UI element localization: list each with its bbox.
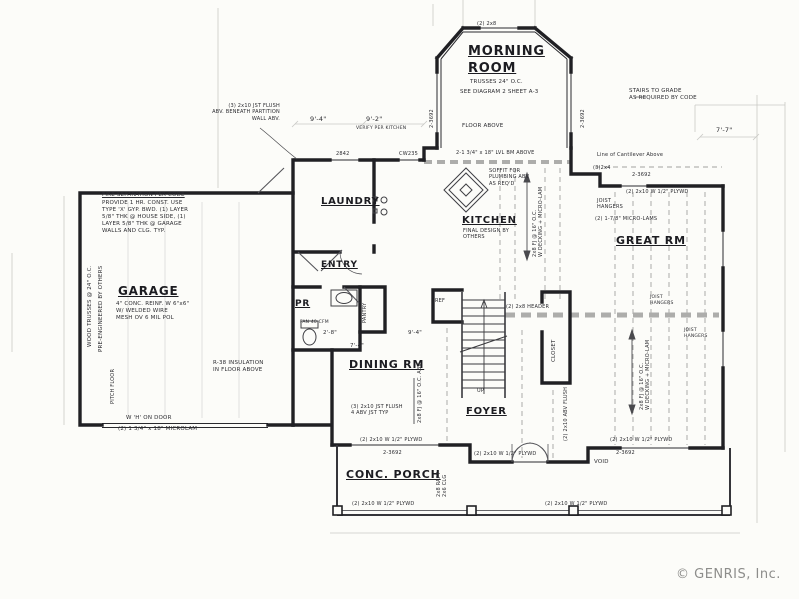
dim-7-7: 7'-7": [716, 126, 732, 134]
room-label-great-rm: GREAT RM: [616, 234, 686, 248]
annotation-arrows: [260, 97, 646, 424]
window-label-3692-north: 2-3692: [632, 172, 651, 178]
fire-separation-title: FIRE SEPARATION PER CODE: [102, 192, 185, 199]
plywd-note-porch-right: (2) 2x10 W 1/2" PLYWD: [545, 501, 607, 507]
garage-header-note: (2) 1 3/4" x 18" MICROLAM: [118, 426, 197, 433]
room-label-closet: CLOSET: [551, 339, 558, 362]
pre-engineered-note: PRE-ENGINEERED BY OTHERS: [98, 266, 105, 352]
lvl-beam-note: 2-1 3/4" x 18" LVL BM ABOVE: [456, 150, 534, 156]
microlams-note: (2) 1-7/8" MICRO-LAMS: [595, 216, 657, 222]
wood-trusses-note: WOOD TRUSSES @ 24" O.C.: [87, 265, 94, 347]
bay-window-label-left: 2-3692: [429, 109, 435, 128]
room-label-laundry: LAUNDRY: [321, 196, 380, 209]
room-label-kitchen: KITCHEN: [462, 215, 517, 228]
room-label-dining: DINING RM: [349, 358, 424, 372]
room-label-entry: ENTRY: [321, 260, 358, 272]
morning-diagram-note: SEE DIAGRAM 2 SHEET A-3: [460, 89, 539, 96]
pitch-floor-note: PITCH FLOOR: [110, 369, 116, 404]
lumber-3-2x4-note: (3)2x4: [593, 165, 611, 171]
room-label-porch: CONC. PORCH: [346, 468, 441, 482]
room-label-morning-1: MORNING: [468, 44, 545, 61]
bay-header-note: (2) 2x8: [477, 21, 496, 27]
h-on-door-note: W 'H' ON DOOR: [126, 415, 172, 422]
dim-7-4: 7'-4": [350, 343, 364, 350]
room-label-foyer: FOYER: [466, 406, 507, 419]
great-rm-joist-note: 2x8 FJ @ 16" O.C. W DECKING + MICRO-LAM: [639, 340, 652, 410]
void-label: VOID: [594, 459, 609, 466]
dim-9-2: 9'-2": [366, 115, 382, 123]
window-label-2842: 2842: [336, 151, 350, 157]
r38-insulation-note: R-38 INSULATION IN FLOOR ABOVE: [213, 360, 264, 374]
room-label-morning-2: ROOM: [468, 61, 516, 78]
verify-kitchen-note: VERIFY PER KITCHEN: [356, 126, 406, 132]
floor-plan-sheet: MORNING ROOM TRUSSES 24" O.C. SEE DIAGRA…: [0, 0, 799, 599]
joist-hangers-note-2: JOIST HANGERS: [650, 295, 674, 307]
kitchen-design-note: FINAL DESIGN BY OTHERS: [463, 228, 509, 241]
kitchen-joist-note: 2x8 FJ @ 16" O.C. W DECKING + MICRO-LAM: [532, 187, 545, 257]
window-label-3692-south: 2-3692: [616, 450, 635, 456]
porch-rafter-note: 2x8 RAFT 2x6 CLG: [436, 472, 449, 497]
dim-2-8: 2'-8": [323, 330, 337, 337]
ref-label: REF: [435, 298, 445, 304]
jst-flush-partition-note: (3) 2x10 JST FLUSH ABV. BENEATH PARTITIO…: [188, 103, 280, 122]
copyright-mark: © GENRIS, Inc.: [676, 567, 781, 584]
dining-joist-note: 2x8 FJ @ 16" O.C. ABV: [417, 363, 423, 423]
plywd-note-great-south: (2) 2x10 W 1/2" PLYWD: [610, 437, 672, 443]
plywd-note-dining-front: (2) 2x10 W 1/2" PLYWD: [360, 437, 422, 443]
room-label-garage: GARAGE: [118, 284, 179, 299]
fixtures: [301, 168, 488, 345]
stairs: [460, 292, 507, 398]
plywd-note-porch-left: (2) 2x10 W 1/2" PLYWD: [352, 501, 414, 507]
fan-note: FAN 40 CFM: [300, 320, 329, 326]
jst-flush-dining-note: (3) 2x10 JST FLUSH 4 ABV JST TYP: [351, 404, 403, 417]
morning-trusses-note: TRUSSES 24" O.C.: [470, 79, 523, 86]
window-label-3692-dining: 2-3692: [383, 450, 402, 456]
header-2x8-note: (2) 2x8 HEADER: [506, 304, 549, 310]
room-label-pr: PR: [295, 299, 310, 311]
plywd-note-foyer-front: (2) 2x10 W 1/2" PLYWD: [474, 451, 536, 457]
kitchen-island: [444, 168, 488, 212]
bay-window-label-right: 2-3692: [580, 109, 586, 128]
dim-9-4: 9'-4": [310, 115, 326, 123]
garage-slab-note: 4" CONC. REINF. W 6"x6" W/ WELDED WIRE M…: [116, 301, 189, 322]
cantilever-note: Line of Cantilever Above: [597, 152, 663, 158]
fire-separation-body: PROVIDE 1 HR. CONST. USE TYPE 'X' GYP. B…: [102, 200, 188, 235]
abv-flush-note: (2) 2x10 ABV FLUSH: [563, 387, 569, 441]
toilet-bowl: [303, 329, 316, 345]
stairs-to-grade-note: STAIRS TO GRADE AS REQUIRED BY CODE: [629, 88, 697, 102]
joist-hangers-note-3: JOIST HANGERS: [684, 328, 708, 340]
soffit-note: SOFFIT FOR PLUMBING ABV AS REQ'D: [489, 168, 529, 187]
joist-hangers-note-1: JOIST HANGERS: [597, 198, 623, 211]
window-label-cw235: CW235: [399, 151, 418, 157]
plywd-note-great-top: (2) 2x10 W 1/2" PLYWD: [626, 189, 688, 195]
stair-direction-label: UP: [477, 388, 484, 394]
dim-9-4-dining: 9'-4": [408, 330, 422, 337]
sink: [336, 293, 352, 304]
room-label-pantry: PANTRY: [362, 303, 368, 323]
floor-above-note: FLOOR ABOVE: [462, 123, 503, 130]
